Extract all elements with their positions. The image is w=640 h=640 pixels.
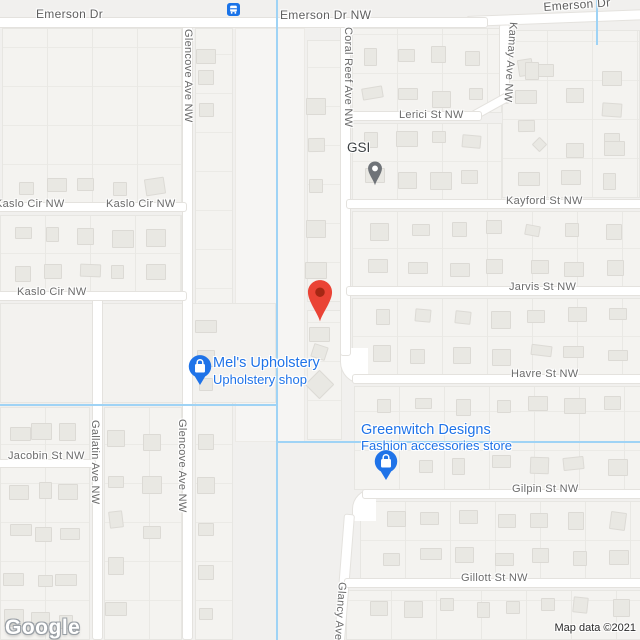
- building: [107, 430, 125, 447]
- building: [364, 48, 378, 66]
- building: [198, 565, 215, 580]
- building: [469, 88, 482, 100]
- poi-label-mels-upholstery[interactable]: Mel's Upholstery: [213, 355, 320, 371]
- building: [404, 601, 423, 618]
- street-label-gillott: Gillott St NW: [461, 572, 528, 584]
- road: [362, 489, 640, 499]
- building: [108, 510, 124, 528]
- street-label-glencove-top: Glencove Ave NW: [180, 29, 194, 123]
- building: [525, 62, 539, 80]
- building: [608, 459, 628, 476]
- street-label-lerici: Lerici St NW: [399, 109, 464, 121]
- street-label-kaslo-2: Kaslo Cir NW: [106, 198, 176, 210]
- building: [9, 485, 29, 500]
- building: [465, 51, 481, 66]
- building: [111, 265, 124, 279]
- building: [370, 601, 389, 616]
- building: [461, 134, 481, 149]
- building: [59, 423, 76, 441]
- building: [420, 512, 439, 525]
- red-map-pin-icon[interactable]: [306, 279, 334, 323]
- building: [431, 46, 445, 62]
- building: [415, 309, 433, 323]
- stream: [0, 404, 277, 406]
- building: [609, 308, 626, 320]
- building: [35, 527, 52, 542]
- street-label-jarvis: Jarvis St NW: [509, 281, 576, 293]
- building: [3, 573, 23, 586]
- building: [376, 309, 390, 325]
- building: [19, 182, 34, 196]
- building: [566, 88, 584, 103]
- building: [108, 557, 124, 575]
- building: [370, 223, 389, 241]
- building: [604, 141, 626, 157]
- building: [561, 170, 581, 185]
- street-label-kaslo-1: Kaslo Cir NW: [0, 198, 65, 210]
- building: [60, 528, 81, 540]
- building: [373, 345, 391, 362]
- building: [492, 455, 511, 467]
- building: [432, 131, 446, 143]
- building: [15, 266, 31, 283]
- building: [541, 598, 555, 611]
- building: [492, 349, 511, 366]
- building: [432, 91, 451, 109]
- shopping-bag-pin-icon[interactable]: [373, 449, 399, 481]
- building: [408, 262, 428, 274]
- building: [530, 513, 548, 528]
- building: [601, 103, 622, 119]
- poi-label-gsi[interactable]: GSI: [347, 140, 370, 155]
- building: [497, 400, 510, 412]
- building: [608, 350, 627, 361]
- building: [455, 310, 472, 324]
- building: [566, 143, 585, 158]
- building: [198, 70, 215, 85]
- poi-category-mels-upholstery: Upholstery shop: [213, 372, 307, 387]
- building: [415, 398, 432, 410]
- street-label-gilpin: Gilpin St NW: [512, 483, 579, 495]
- building: [538, 64, 555, 76]
- building: [530, 343, 552, 356]
- stream: [276, 0, 278, 640]
- building: [602, 71, 623, 86]
- building: [38, 575, 53, 587]
- building: [420, 548, 442, 560]
- building: [568, 512, 585, 530]
- building: [430, 172, 452, 190]
- building: [112, 230, 134, 248]
- building: [528, 396, 549, 412]
- building: [573, 551, 587, 566]
- street-label-gallatin: Gallatin Ave NW: [87, 420, 101, 504]
- building: [197, 477, 215, 494]
- building: [477, 602, 490, 618]
- map-data-attribution: Map data ©2021: [555, 622, 637, 634]
- street-label-havre: Havre St NW: [511, 368, 578, 380]
- building: [146, 264, 166, 280]
- building: [196, 49, 215, 64]
- building: [143, 434, 161, 452]
- building: [412, 224, 429, 237]
- map-canvas[interactable]: Emerson Dr Emerson Dr NW Emerson Dr Leri…: [0, 0, 640, 640]
- poi-label-greenwitch-designs[interactable]: Greenwitch Designs: [361, 422, 491, 438]
- gray-map-pin-icon[interactable]: [367, 160, 383, 187]
- building: [398, 88, 418, 100]
- building: [142, 476, 163, 494]
- building: [309, 179, 324, 193]
- building: [491, 311, 511, 329]
- street-label-jacobin: Jacobin St NW: [8, 450, 85, 462]
- building: [568, 307, 588, 322]
- building: [10, 524, 32, 536]
- building: [396, 131, 418, 147]
- building: [398, 49, 415, 62]
- building: [563, 346, 584, 359]
- building: [198, 434, 215, 451]
- building: [46, 227, 59, 242]
- building: [108, 476, 125, 489]
- building: [77, 178, 94, 191]
- city-block: [0, 303, 276, 403]
- building: [564, 262, 585, 277]
- street-label-coral-reef: Coral Reef Ave NW: [340, 27, 354, 127]
- street-label-glencove-bottom: Glencove Ave NW: [174, 419, 188, 513]
- building: [518, 172, 540, 187]
- building: [146, 229, 166, 247]
- building: [105, 602, 127, 616]
- building: [453, 347, 471, 364]
- building: [308, 138, 325, 152]
- building: [199, 608, 214, 620]
- building: [515, 90, 536, 105]
- building: [383, 553, 400, 566]
- building: [609, 511, 627, 531]
- building: [604, 396, 622, 410]
- building: [306, 98, 327, 116]
- building: [44, 264, 62, 279]
- building: [530, 457, 550, 475]
- building: [55, 574, 77, 585]
- building: [461, 170, 479, 183]
- building: [144, 177, 166, 197]
- road: [352, 374, 640, 384]
- building: [368, 259, 388, 273]
- road: [346, 286, 640, 296]
- building: [603, 173, 616, 191]
- building: [198, 523, 214, 536]
- city-block: [352, 28, 502, 113]
- building: [606, 224, 622, 241]
- building: [450, 263, 470, 277]
- building: [199, 103, 214, 117]
- building: [456, 399, 471, 415]
- bus-station-icon[interactable]: [227, 3, 240, 16]
- building: [486, 259, 502, 273]
- building: [377, 399, 391, 413]
- building: [387, 511, 406, 527]
- building: [58, 484, 78, 500]
- building: [563, 456, 586, 471]
- building: [305, 262, 326, 279]
- shopping-bag-pin-icon[interactable]: [187, 354, 213, 386]
- road: [346, 199, 640, 209]
- building: [531, 260, 549, 274]
- building: [410, 349, 426, 364]
- building: [609, 550, 629, 565]
- building: [306, 220, 325, 238]
- building: [572, 596, 589, 614]
- building: [39, 482, 53, 499]
- building: [452, 222, 467, 237]
- building: [79, 263, 101, 277]
- building: [455, 547, 474, 563]
- building: [459, 510, 478, 524]
- building: [77, 228, 94, 244]
- building: [15, 227, 32, 239]
- building: [398, 172, 417, 189]
- building: [527, 310, 545, 324]
- building: [10, 427, 31, 442]
- building: [419, 460, 434, 473]
- building: [440, 598, 454, 611]
- building: [565, 223, 580, 237]
- building: [143, 526, 161, 539]
- building: [613, 599, 631, 617]
- building: [607, 260, 624, 276]
- building: [31, 423, 52, 440]
- building: [564, 398, 586, 414]
- building: [506, 601, 521, 614]
- building: [452, 458, 465, 476]
- building: [532, 548, 550, 564]
- building: [309, 327, 330, 342]
- building: [518, 119, 535, 131]
- street-label-emerson-dr: Emerson Dr: [36, 7, 103, 21]
- building: [113, 182, 127, 195]
- street-label-kayford: Kayford St NW: [506, 195, 583, 207]
- building: [486, 220, 501, 234]
- street-label-emerson-dr-nw: Emerson Dr NW: [280, 8, 371, 22]
- google-logo[interactable]: Google: [5, 616, 80, 640]
- building: [195, 320, 216, 332]
- street-label-kaslo-3: Kaslo Cir NW: [17, 286, 87, 298]
- building: [47, 178, 67, 192]
- building: [498, 514, 516, 528]
- building: [495, 553, 514, 566]
